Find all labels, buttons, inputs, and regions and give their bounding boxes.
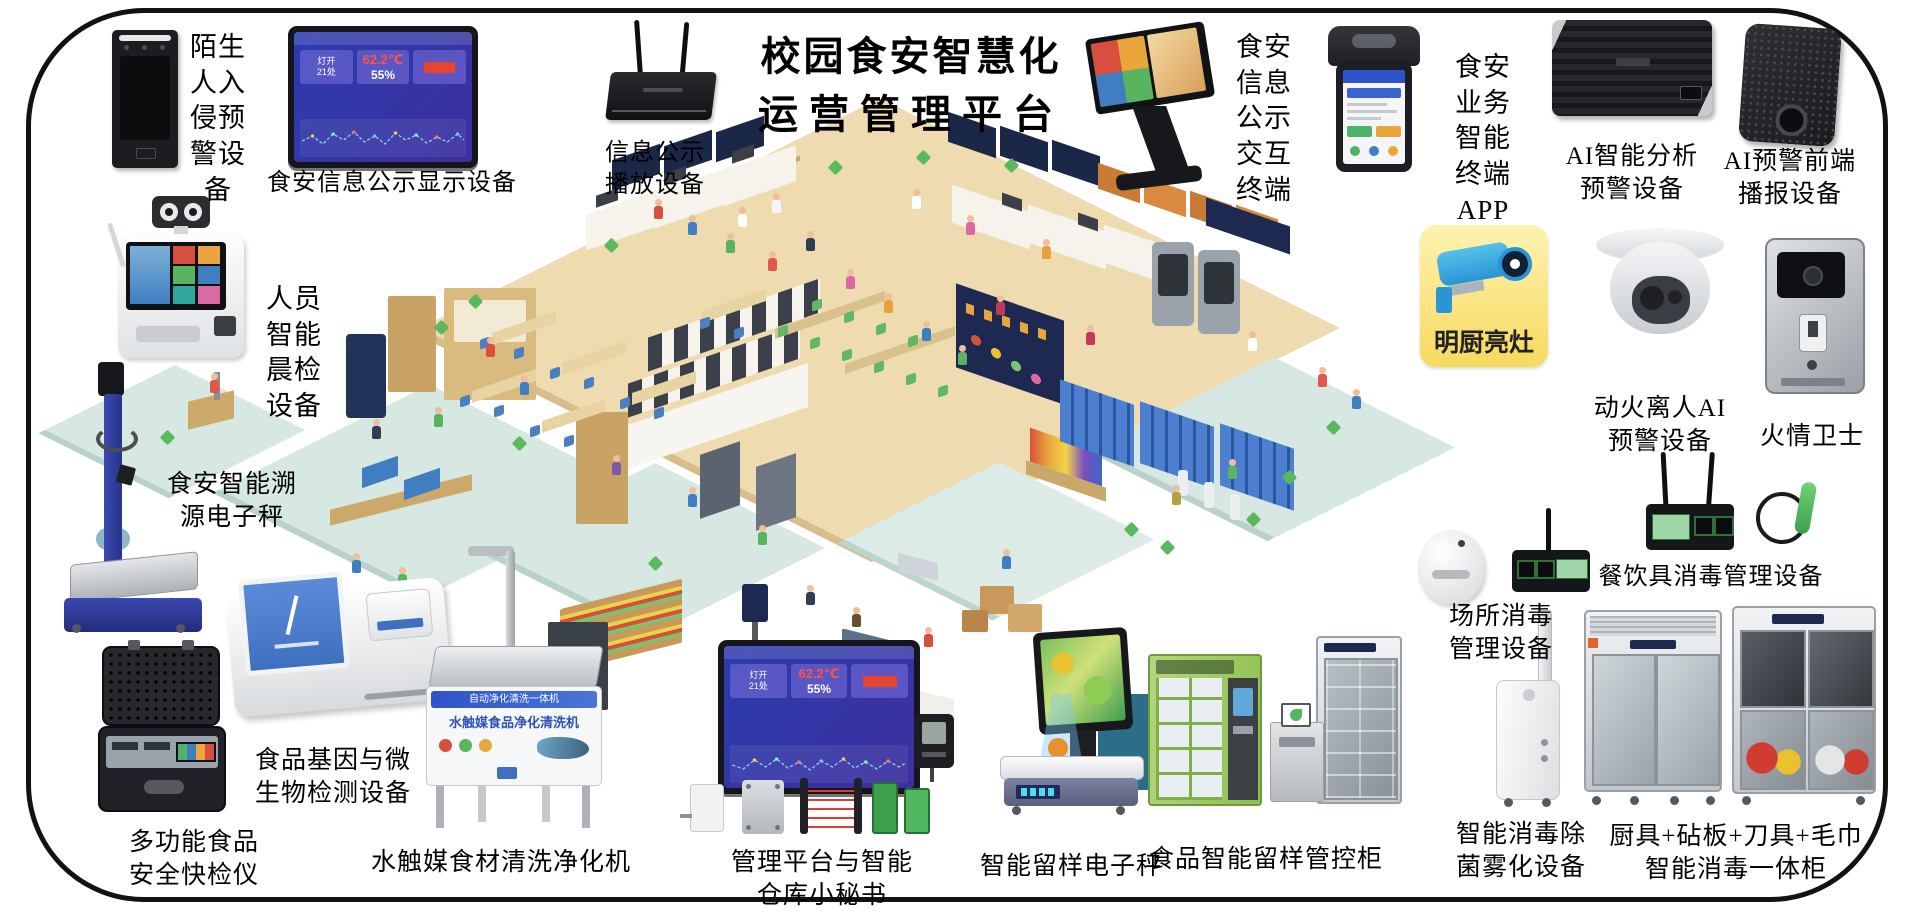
usb-pin xyxy=(1808,321,1818,337)
text-line xyxy=(1347,103,1387,106)
fire-leave-ai-label: 动火离人AI 预警设备 xyxy=(1582,392,1738,458)
title-line2: 运营管理平台 xyxy=(735,82,1087,140)
light-value: 21处 xyxy=(749,681,768,692)
mini-screen xyxy=(176,742,216,762)
alert-card xyxy=(851,664,908,698)
sensor-box-device xyxy=(690,784,726,834)
leg xyxy=(542,786,550,822)
hook-handle xyxy=(96,426,138,452)
caster-wheel xyxy=(1592,796,1601,805)
logo-strip xyxy=(642,88,682,92)
fish-graphic xyxy=(537,737,589,759)
cabinet-body xyxy=(1584,610,1722,792)
ai-broadcast-device xyxy=(1738,23,1842,147)
keyboard-ledge xyxy=(1279,737,1315,747)
lens-icon xyxy=(124,45,129,50)
device-screen xyxy=(120,56,170,140)
caster-wheel xyxy=(1504,798,1513,807)
caster-wheel xyxy=(176,624,185,633)
ai-analysis-label: AI智能分析 预警设备 xyxy=(1552,140,1712,206)
dashboard-screen: 灯开 21处 62.2℃ 55% xyxy=(294,32,472,162)
info-display-device: 灯开 21处 62.2℃ 55% xyxy=(288,26,478,168)
tile xyxy=(198,266,220,284)
antenna-icon xyxy=(1661,452,1669,506)
banner-text: 水触媒食品净化清洗机 xyxy=(431,713,597,733)
glass-door xyxy=(1592,654,1656,786)
kitchen-cabinet-left xyxy=(1584,610,1724,808)
orange-button xyxy=(1376,126,1401,137)
leg xyxy=(436,786,444,828)
dashboard-header xyxy=(294,32,472,45)
caster-wheel xyxy=(1670,796,1679,805)
header-display xyxy=(1324,643,1376,652)
top-strip-text: 自动净化清洗一体机 xyxy=(431,691,597,708)
case-lid-foam xyxy=(102,646,220,726)
orange-fruit xyxy=(1048,738,1068,758)
info-kiosk-device xyxy=(1086,24,1226,202)
sample-scale-device xyxy=(996,630,1146,820)
speaker-slot xyxy=(136,148,156,159)
dashboard-header xyxy=(724,646,914,659)
kiosk-screen xyxy=(1085,21,1215,115)
laser-beams xyxy=(808,786,854,828)
fog-body xyxy=(1496,680,1560,800)
page-title: 校园食安智慧化 运营管理平台 xyxy=(735,24,1087,140)
temperature-value: 62.2℃ xyxy=(362,52,403,68)
scanner-window xyxy=(214,316,236,336)
corner-screw xyxy=(775,784,780,789)
fog-disinfect-label: 智能消毒除 菌雾化设备 xyxy=(1440,818,1602,884)
slot xyxy=(144,742,170,750)
glass-door xyxy=(1324,658,1398,800)
fire-guard-label: 火情卫士 xyxy=(1748,420,1876,453)
antenna-icon xyxy=(1546,508,1551,552)
screen-header xyxy=(1343,70,1405,83)
lens-icon xyxy=(1803,266,1823,286)
eye-lens-icon xyxy=(160,203,178,221)
trace-scale-label: 食安智能溯 源电子秤 xyxy=(156,468,308,534)
temperature-value: 62.2℃ xyxy=(798,666,839,682)
green-sensor-stick xyxy=(1794,481,1818,535)
laser-curtain-device xyxy=(800,778,862,836)
glass-door xyxy=(1656,654,1720,786)
dashboard-cards: 灯开 21处 62.2℃ 55% xyxy=(724,659,914,703)
tile xyxy=(173,246,195,264)
photo-pane xyxy=(130,246,170,304)
thermal-lens-icon xyxy=(1640,286,1664,310)
pcb-board xyxy=(872,782,898,834)
scale-display-head xyxy=(98,362,124,396)
text-line xyxy=(1347,110,1397,113)
case-base xyxy=(98,726,226,812)
optical-lens-icon xyxy=(1668,290,1682,304)
control-display xyxy=(1772,614,1824,624)
smart-terminal-device xyxy=(1328,26,1422,174)
speaker-knob xyxy=(1774,103,1808,137)
antenna-icon xyxy=(1706,452,1715,506)
ai-analysis-device xyxy=(1552,20,1712,116)
alert-pill xyxy=(863,676,897,687)
site-sensor-device xyxy=(1418,530,1484,604)
tableware-disinfect-label: 餐饮具消毒管理设备 xyxy=(1580,562,1842,594)
sample-cabinet-steel xyxy=(1270,636,1404,814)
dashboard-screen: 灯开 21处 62.2℃ 55% xyxy=(724,646,914,788)
quick-tester-label: 多功能食品 安全快检仪 xyxy=(116,826,272,892)
cabinet-body xyxy=(1732,606,1876,794)
port xyxy=(1680,86,1702,100)
camera-mount xyxy=(1436,287,1452,313)
app-icon xyxy=(1350,146,1360,156)
paper-slot xyxy=(1352,34,1396,48)
tile xyxy=(173,266,195,284)
seam-line xyxy=(612,110,706,112)
lan-port xyxy=(1536,560,1555,579)
tile xyxy=(198,286,220,304)
food-photo xyxy=(1147,27,1206,98)
pupil xyxy=(165,208,173,216)
control-column xyxy=(1228,678,1258,800)
glass-door-dark xyxy=(1740,630,1806,708)
side-console xyxy=(1270,722,1324,802)
fire-leave-ai-device xyxy=(1592,228,1728,346)
latch xyxy=(128,640,140,650)
lan-port xyxy=(1694,516,1714,536)
hook-icon xyxy=(116,464,136,486)
leg xyxy=(478,786,486,822)
knob-dot xyxy=(1541,755,1548,762)
towel-door xyxy=(1808,710,1874,790)
sample-windows-grid xyxy=(1156,678,1222,800)
printer-head xyxy=(1328,26,1420,66)
alert-card xyxy=(413,50,466,84)
cleaner-body: 自动净化清洗一体机 水触媒食品净化清洗机 xyxy=(426,686,602,786)
brand-badge xyxy=(1588,638,1598,648)
laser-post xyxy=(854,778,862,834)
ai-broadcast-label: AI预警前端 播报设备 xyxy=(1718,145,1862,211)
antenna-icon xyxy=(634,20,643,76)
corner-screw xyxy=(746,825,751,830)
outlet-slot xyxy=(1233,726,1253,734)
lens-icon xyxy=(142,45,147,50)
router-display xyxy=(1652,514,1690,540)
pcb-board xyxy=(904,788,930,834)
light-card: 灯开 21处 xyxy=(300,50,353,84)
terminal-screen xyxy=(126,242,226,310)
kitchen-cabinet-label: 厨具+砧板+刀具+毛巾 智能消毒一体柜 xyxy=(1582,820,1890,886)
lens-icon xyxy=(160,45,165,50)
camera-strip xyxy=(119,35,171,41)
mgmt-platform-monitor: 灯开 21处 62.2℃ 55% xyxy=(718,640,920,794)
light-label: 灯开 xyxy=(749,670,767,681)
caster-wheel xyxy=(1706,796,1715,805)
tile xyxy=(198,246,220,264)
header-strip xyxy=(1156,660,1234,674)
slot xyxy=(112,742,138,750)
router-body xyxy=(1512,550,1590,592)
pupil xyxy=(189,208,197,216)
scale-base xyxy=(1004,778,1138,806)
text-line xyxy=(275,641,319,649)
foot xyxy=(1012,806,1021,815)
leaf-graphic xyxy=(1290,709,1302,721)
info-display-label: 食安信息公示显示设备 xyxy=(252,168,532,200)
antenna-icon xyxy=(680,22,690,76)
gene-detector-label: 食品基因与微 生物检测设备 xyxy=(250,744,416,810)
morning-check-device xyxy=(118,196,246,388)
site-disinfect-label: 场所消毒 管理设备 xyxy=(1438,600,1564,666)
paper-slot xyxy=(377,618,424,631)
kitchen-cabinet-right xyxy=(1732,606,1878,806)
terminal-body xyxy=(118,234,244,358)
logger-body xyxy=(914,714,954,768)
trend-chart xyxy=(300,119,466,157)
alert-pill xyxy=(424,62,456,73)
env-card: 62.2℃ 55% xyxy=(791,664,848,698)
sample-cabinet-green xyxy=(1148,654,1264,814)
drain-tap xyxy=(497,767,517,779)
latch xyxy=(182,640,194,650)
router-body xyxy=(1646,504,1734,550)
light-value: 21处 xyxy=(317,67,336,78)
knob-dot xyxy=(1541,739,1548,746)
glass-door-dark xyxy=(1808,630,1874,708)
tableware-router-device xyxy=(1646,452,1736,554)
quick-tester-device xyxy=(98,646,228,818)
weight-display xyxy=(1016,785,1060,799)
lens-glint xyxy=(1509,258,1521,270)
dashboard-cards: 灯开 21处 62.2℃ 55% xyxy=(294,45,472,89)
player-body xyxy=(605,72,717,120)
mgmt-platform-label: 管理平台与智能 仓库小秘书 xyxy=(714,846,930,912)
fruit-graphic xyxy=(1051,652,1074,675)
louver-panel xyxy=(1590,616,1716,636)
probe-cable xyxy=(930,768,934,782)
digits xyxy=(1021,788,1055,796)
printer-slot xyxy=(136,326,200,342)
sensor-eye xyxy=(1458,540,1465,547)
camera-window xyxy=(1777,252,1845,298)
foot xyxy=(1116,806,1125,815)
fire-guard-device xyxy=(1765,238,1865,394)
smart-terminal-label: 食安 业务 智能 终端 APP xyxy=(1448,50,1518,228)
control-display xyxy=(1630,640,1676,649)
caster-wheel xyxy=(72,624,81,633)
humidity-value: 55% xyxy=(807,682,831,696)
steel-cabinet-body xyxy=(1316,636,1402,804)
infographic-page: { "title": {"line1": "校园食安智慧化", "line2":… xyxy=(0,0,1920,916)
usb-slot xyxy=(1799,314,1827,352)
sensor-slot xyxy=(1432,570,1470,579)
white-box xyxy=(690,784,724,832)
terminal-screen xyxy=(1343,70,1405,164)
tile xyxy=(173,286,195,304)
caster-wheel xyxy=(1742,796,1751,805)
cable-stub xyxy=(680,814,692,818)
inlet-cap xyxy=(1523,689,1535,701)
info-kiosk-label: 食安 信息 公示 交互 终端 xyxy=(1232,30,1296,208)
logger-screen xyxy=(922,722,946,744)
veg-icon xyxy=(439,739,452,752)
veg-icon xyxy=(479,739,492,752)
logo-plate xyxy=(1616,58,1650,66)
light-label: 灯开 xyxy=(317,56,335,67)
caster-wheel xyxy=(1542,798,1551,807)
corner-screw xyxy=(746,784,751,789)
caster-wheel xyxy=(1856,796,1865,805)
lan-port xyxy=(1714,516,1734,536)
app-icon xyxy=(1369,146,1379,156)
dashboard-chart xyxy=(300,119,466,157)
vent-strip xyxy=(1781,378,1845,386)
light-card: 灯开 21处 xyxy=(730,664,787,698)
laptop-screen xyxy=(1281,703,1311,727)
weigh-plate xyxy=(1000,756,1144,780)
text-line xyxy=(1347,117,1381,120)
laser-post xyxy=(800,778,808,834)
stranger-alarm-label: 陌生 人入 侵预 警设 备 xyxy=(188,30,248,208)
screw-dot xyxy=(1807,360,1817,370)
handle xyxy=(144,780,184,794)
morning-check-label: 人员 智能 晨检 设备 xyxy=(262,282,326,425)
caster-wheel xyxy=(1630,796,1639,805)
title-line1: 校园食安智慧化 xyxy=(735,24,1087,82)
terminal-body xyxy=(1336,62,1412,172)
menu-tiles xyxy=(1091,36,1154,108)
bright-kitchen-text: 明厨亮灶 xyxy=(1420,323,1548,359)
logger-port xyxy=(922,752,946,757)
lan-port xyxy=(1517,560,1536,579)
pipette-graphic xyxy=(286,595,299,635)
metal-plate-device xyxy=(742,780,784,834)
fruit-graphic xyxy=(1083,675,1113,705)
hood-top xyxy=(428,646,603,688)
humidity-value: 55% xyxy=(371,68,395,82)
temp-logger-device xyxy=(914,714,958,774)
leg xyxy=(582,786,590,828)
tableware-tag-device xyxy=(1756,482,1826,552)
info-player-device xyxy=(608,20,718,125)
info-player-label: 信息公示 播放设备 xyxy=(596,138,714,201)
app-icon xyxy=(1388,146,1398,156)
weigh-platform xyxy=(70,551,198,602)
water-cleaner-label: 水触媒食材清洗净化机 xyxy=(352,846,650,879)
green-cabinet-body xyxy=(1148,654,1262,806)
stranger-alarm-device xyxy=(112,30,178,168)
green-button xyxy=(1347,126,1372,137)
water-cleaner-device: 自动净化清洗一体机 水触媒食品净化清洗机 xyxy=(422,546,608,836)
faucet-pipe xyxy=(506,550,515,652)
analyzer-screen xyxy=(238,572,350,677)
towel-door xyxy=(1740,710,1806,790)
bright-kitchen-tile: 明厨亮灶 xyxy=(1420,225,1548,367)
lens-window xyxy=(1632,276,1690,324)
control-screen xyxy=(1233,688,1253,716)
veg-icon xyxy=(459,739,472,752)
env-card: 62.2℃ 55% xyxy=(357,50,410,84)
instrument-tray xyxy=(106,736,218,768)
corner-screw xyxy=(775,825,780,830)
sample-cabinet-label: 食品智能留样管控柜 xyxy=(1140,843,1392,876)
kiosk-stand xyxy=(1132,106,1190,172)
pcb-modules-device xyxy=(872,782,932,838)
screen-band xyxy=(1347,88,1401,98)
